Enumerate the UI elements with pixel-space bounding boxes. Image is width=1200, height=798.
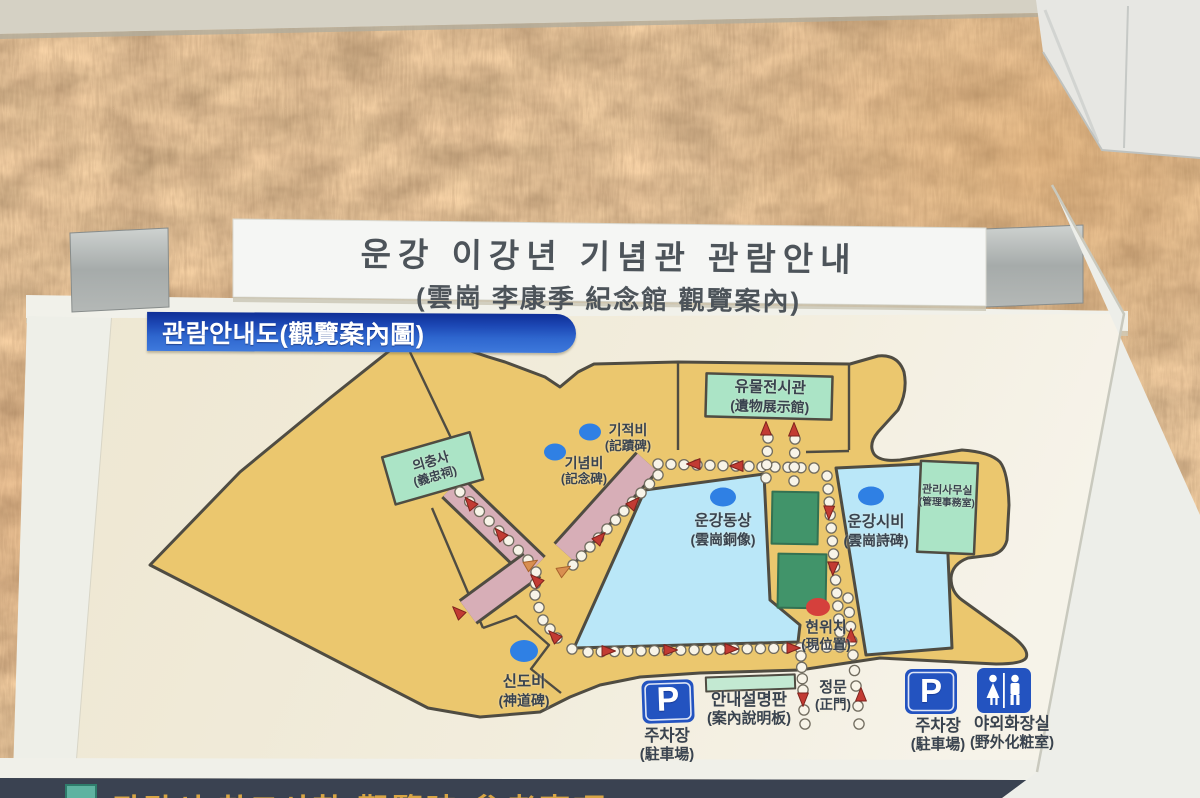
label-infoboard: 안내설명판 (案內說明板)	[707, 691, 791, 729]
bottom-panel-title: 관람시 참고사항(觀覽時 參考事項)	[112, 785, 621, 798]
marker-gijeokbi	[579, 424, 601, 441]
map-banner-text: 관람안내도(觀覽案內圖)	[162, 313, 425, 350]
post-cap-right	[984, 225, 1083, 307]
sign-title-korean: 운강 이강년 기념관 관람안내	[232, 226, 985, 283]
marker-current-location	[806, 598, 830, 616]
label-toilet: 야외화장실 (野外化粧室)	[970, 715, 1054, 753]
label-parking-right: 주차장 (駐車場)	[911, 717, 965, 755]
parking-letter-left: P	[656, 680, 680, 720]
label-museum: 유물전시관 (遺物展示館)	[730, 378, 810, 415]
label-office: 관리사무실 (管理事務室)	[919, 484, 976, 511]
label-poem-stone: 운강시비 (雲崗詩碑)	[843, 513, 908, 548]
label-ginyeombi: 기념비 (記念碑)	[561, 455, 607, 487]
bottom-panel-bullet	[66, 785, 96, 798]
post-cap-left	[70, 228, 169, 312]
toilet-icon	[977, 668, 1031, 713]
label-gijeokbi: 기적비 (記蹟碑)	[605, 422, 651, 454]
infoboard-bar	[706, 674, 795, 691]
parking-letter-right: P	[920, 672, 942, 710]
label-statue: 운강동상 (雲崗銅像)	[690, 512, 755, 547]
label-gate: 정문 (正門)	[815, 679, 851, 713]
marker-sindobi	[510, 640, 538, 662]
label-parking-left: 주차장 (駐車場)	[640, 727, 694, 765]
sign-title-board-text: 운강 이강년 기념관 관람안내 (雲崗 李康季 紀念館 觀覽案內)	[232, 219, 986, 315]
lawn-block-upper	[772, 492, 819, 545]
label-sindobi: 신도비 (神道碑)	[498, 673, 549, 708]
scene-graphics	[0, 0, 1200, 798]
map-banner: 관람안내도(觀覽案內圖)	[147, 312, 576, 353]
marker-statue	[710, 488, 736, 507]
marker-poem-stone	[858, 487, 884, 506]
signboard-photo: 운강 이강년 기념관 관람안내 (雲崗 李康季 紀念館 觀覽案內) 관람안내도(…	[0, 0, 1200, 798]
label-current-location: 현위치 (現位置)	[801, 619, 851, 653]
